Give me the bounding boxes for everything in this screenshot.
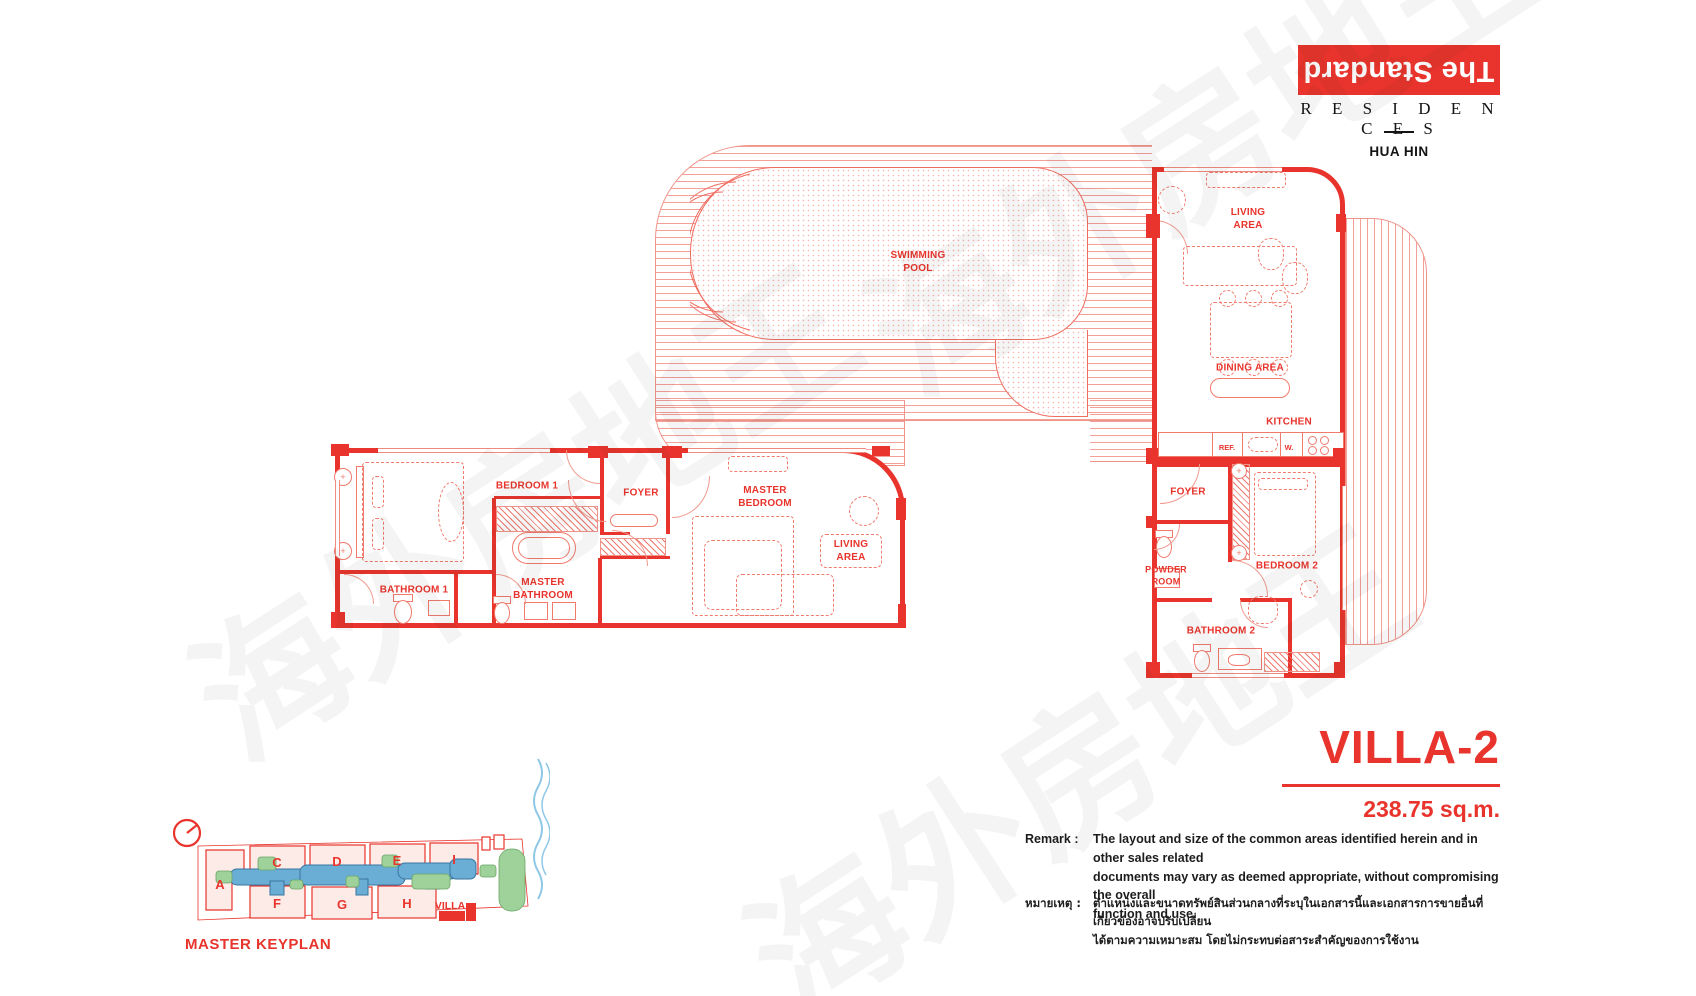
the-standard-logo: The Standard	[1298, 45, 1500, 95]
keyplan-label-i: I	[452, 852, 456, 867]
console-table	[1206, 172, 1286, 188]
wall-pillar	[1333, 448, 1345, 464]
window	[688, 448, 866, 453]
wall-pillar	[662, 446, 682, 458]
stove-burner	[1308, 436, 1317, 445]
wall-pillar	[896, 498, 906, 520]
dining-chair	[1219, 290, 1236, 307]
wall-pillar	[1146, 516, 1156, 528]
villa-title-underline	[1282, 784, 1500, 787]
keyplan-label-g: G	[337, 897, 347, 912]
wall	[338, 570, 494, 574]
counter-divider	[1242, 432, 1243, 457]
wardrobe-hatch	[1264, 652, 1320, 672]
window	[1342, 486, 1347, 610]
vanity-sink	[524, 602, 548, 620]
wall-pillar	[588, 446, 608, 458]
lounge-chair	[1158, 186, 1186, 214]
villa-title: VILLA-2	[1282, 724, 1500, 770]
counter-divider	[1212, 432, 1213, 457]
keyplan-label-a: A	[215, 877, 225, 892]
remark-label-th: หมายเหตุ :	[1025, 894, 1083, 949]
counter-divider	[1280, 432, 1281, 457]
kitchen-sink	[1248, 437, 1278, 452]
logo-text: The Standard	[1303, 54, 1494, 87]
dresser	[728, 456, 788, 472]
wall-pillar	[872, 446, 890, 456]
room-label-master-bathroom: MASTER BATHROOM	[506, 576, 580, 602]
room-label-kitchen: KITCHEN	[1266, 416, 1312, 429]
pool-steps-crescent	[690, 172, 830, 334]
keyplan-label-villa: VILLA	[435, 900, 466, 912]
location-label: HUA HIN	[1298, 144, 1500, 159]
plant-symbol: +	[1231, 463, 1247, 479]
floor-plan-page: 海外房地王 海外房地王 海外房地王 The Standard R E S I D…	[0, 0, 1696, 996]
brand-divider	[1384, 131, 1414, 133]
wall-pillar	[1146, 448, 1158, 464]
right-deck	[1345, 218, 1427, 645]
room-label-bedroom-2: BEDROOM 2	[1256, 560, 1318, 573]
toilet	[494, 602, 510, 624]
armchair	[1282, 262, 1308, 294]
room-label-powder-room: POWDER ROOM	[1139, 564, 1193, 587]
window	[1164, 167, 1282, 172]
label-washer: W.	[1285, 443, 1294, 453]
keyplan-label-c: C	[272, 855, 282, 870]
window	[378, 448, 550, 453]
wall-pillar	[331, 612, 345, 628]
wall	[666, 450, 670, 534]
room-label-foyer: FOYER	[1170, 486, 1205, 499]
residences-wordmark: R E S I D E N C E S	[1298, 99, 1504, 139]
keyplan-label-e: E	[393, 853, 402, 868]
remark-text-th: ตำแหน่งและขนาดทรัพย์สินส่วนกลางที่ระบุใน…	[1093, 894, 1505, 949]
keyplan-drawing: A C D E I F G H VILLA	[150, 745, 550, 960]
dining-chair	[1245, 290, 1262, 307]
bed-runner	[438, 482, 464, 542]
wall-pillar	[1146, 214, 1160, 238]
keyplan-label-h: H	[402, 896, 411, 911]
stool	[1300, 580, 1318, 598]
dining-table	[1210, 302, 1292, 358]
vanity-sink	[552, 602, 576, 620]
armchair	[1258, 238, 1284, 270]
counter-divider	[1302, 432, 1303, 457]
bathtub-basin	[518, 537, 570, 559]
lounge-chair	[849, 496, 879, 526]
foyer-bench	[610, 514, 658, 527]
bed-pillow	[1258, 478, 1308, 490]
label-refrigerator: REF.	[1219, 443, 1235, 453]
sink-basin	[1228, 654, 1250, 666]
keyplan-title: MASTER KEYPLAN	[185, 936, 331, 953]
room-label-master-bedroom: MASTER BEDROOM	[723, 484, 808, 510]
stove-burner	[1320, 436, 1329, 445]
stove-burner	[1308, 446, 1317, 455]
bed-pillow	[372, 476, 384, 508]
keyplan-label-d: D	[332, 854, 341, 869]
dining-chair	[1271, 290, 1288, 307]
window	[1192, 673, 1284, 678]
wall-pillar	[1146, 662, 1160, 678]
room-label-swimming-pool: SWIMMING POOL	[891, 249, 946, 275]
plant-symbol: +	[1231, 545, 1247, 561]
pool-deck-side	[1090, 400, 1152, 462]
wall	[598, 558, 602, 626]
toilet	[394, 600, 412, 624]
wall-pillar	[331, 444, 349, 456]
sink	[428, 600, 450, 616]
keyplan-label-f: F	[273, 896, 281, 911]
wall-pillar	[1334, 662, 1345, 678]
north-indicator-icon	[174, 820, 200, 846]
bed-pillow	[372, 518, 384, 550]
room-label-bedroom-1: BEDROOM 1	[496, 480, 558, 493]
master-keyplan: A C D E I F G H VILLA	[150, 745, 550, 960]
wall	[454, 574, 458, 626]
window	[335, 480, 340, 556]
wall	[1152, 598, 1212, 602]
sideboard	[1210, 378, 1290, 398]
toilet	[1194, 650, 1210, 672]
remark-th: หมายเหตุ : ตำแหน่งและขนาดทรัพย์สินส่วนกล…	[1025, 894, 1505, 949]
wall-pillar	[898, 604, 906, 628]
room-label-bathroom-2: BATHROOM 2	[1187, 625, 1255, 638]
room-label-foyer-left: FOYER	[623, 487, 658, 500]
room-label-living-area: LIVING AREA	[1218, 206, 1278, 232]
wall-pillar	[1336, 214, 1346, 232]
room-label-bathroom-1: BATHROOM 1	[380, 584, 448, 597]
room-label-dining-area: DINING AREA	[1216, 362, 1284, 375]
villa-area: 238.75 sq.m.	[1282, 796, 1500, 823]
sofa	[736, 574, 834, 616]
keyplan-shoreline	[534, 759, 550, 899]
stove-burner	[1320, 446, 1329, 455]
room-label-living-area-left: LIVING AREA	[824, 538, 879, 564]
